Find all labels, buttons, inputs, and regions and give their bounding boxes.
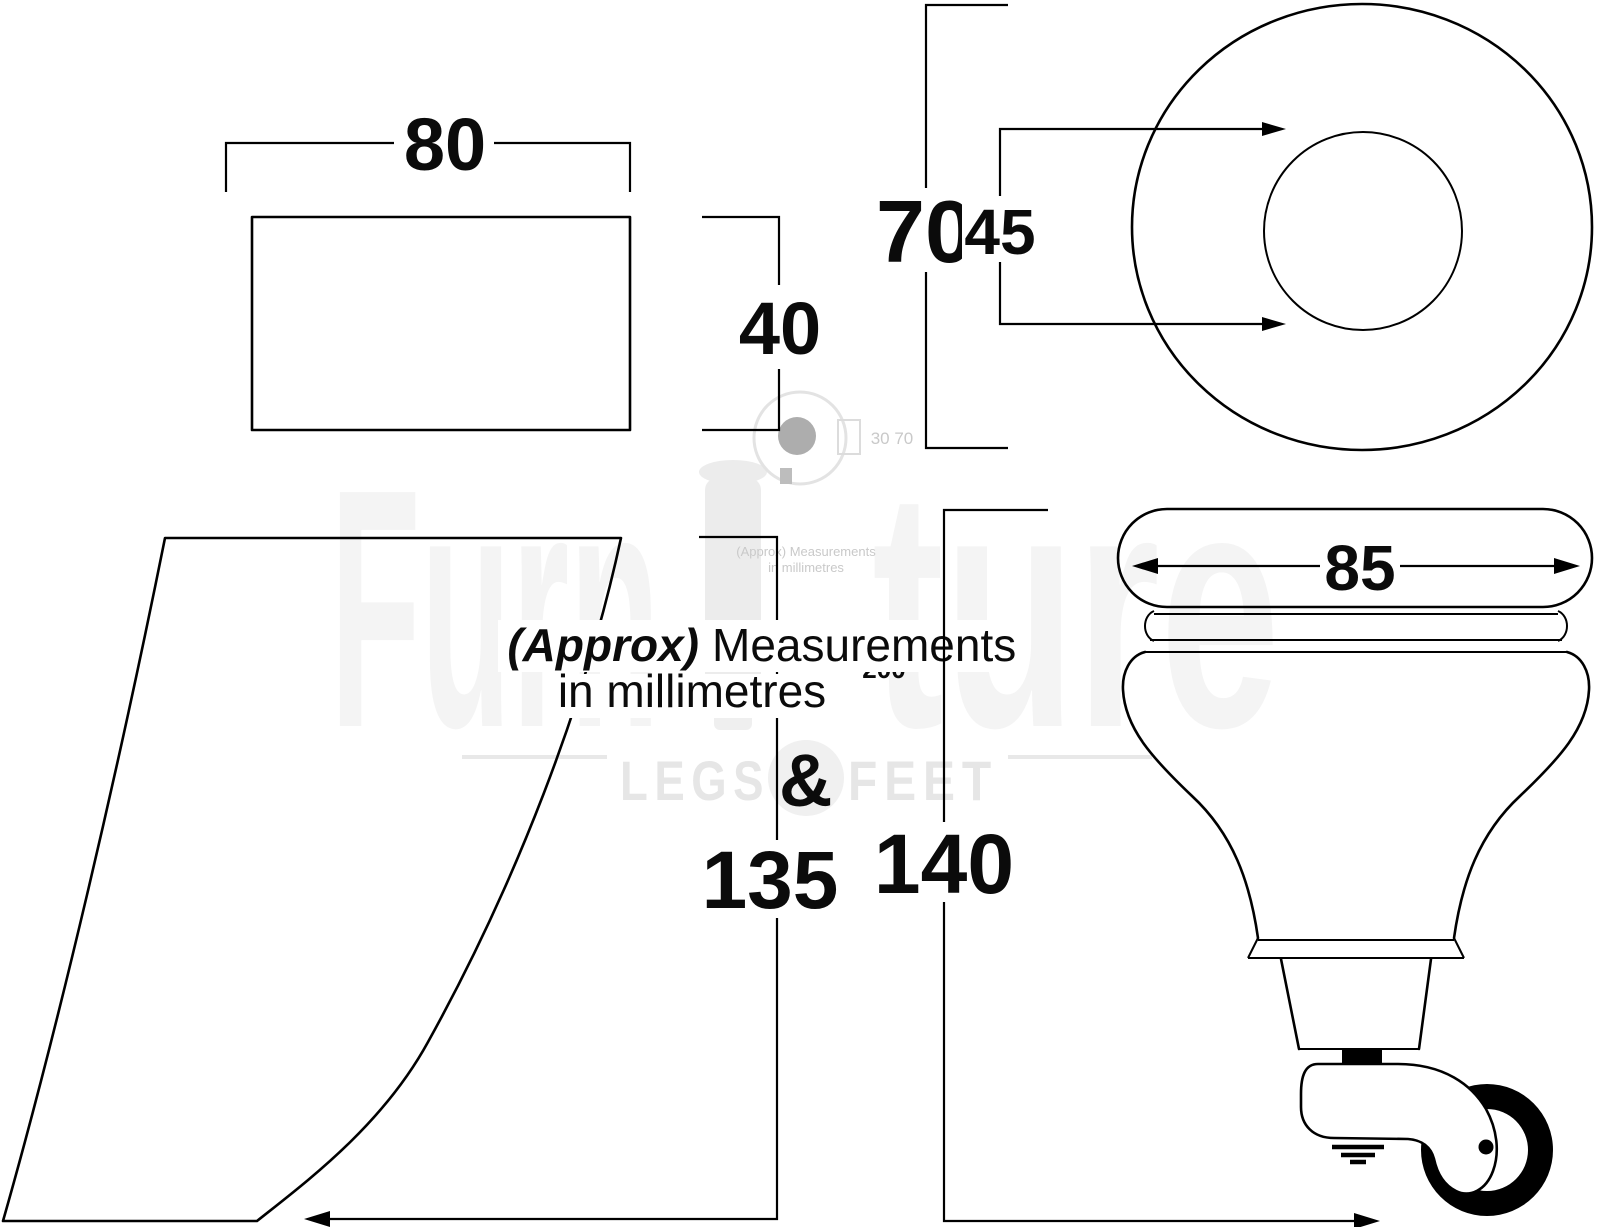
dim-label-135: 135 xyxy=(702,835,839,926)
diagram-canvas: Furn ture 30 70 (Approx) Measurements in… xyxy=(0,0,1600,1227)
castor-horn-bracket xyxy=(1301,1064,1497,1194)
dim-label-70: 70 xyxy=(876,182,974,281)
watermark-legs: LEGS xyxy=(620,749,770,812)
arrowhead-135 xyxy=(304,1211,330,1227)
dim-40: 40 xyxy=(702,217,827,430)
watermark-brand-left: Furn xyxy=(330,419,660,799)
dim-label-45: 45 xyxy=(964,196,1035,268)
watermark-brand-right: ture xyxy=(872,419,1280,799)
arrowhead-45-top xyxy=(1262,122,1286,136)
units-note-line2: in millimetres xyxy=(558,665,826,717)
top-view-round-leg: 70 45 xyxy=(876,4,1592,450)
castor-axle-dot xyxy=(1479,1140,1494,1155)
top-view-rect-leg: 80 40 xyxy=(226,103,827,430)
dim-80: 80 xyxy=(226,103,630,192)
watermark-small-note-2: in millimetres xyxy=(768,560,844,575)
arrowhead-140 xyxy=(1354,1213,1380,1227)
dim-label-85: 85 xyxy=(1324,532,1395,604)
watermark-ampersand: & xyxy=(779,739,832,822)
units-note-approx: (Approx) xyxy=(507,619,699,671)
watermark-feet: FEET xyxy=(848,749,998,812)
round-leg-inner-circle xyxy=(1264,132,1462,330)
dim-45: 45 xyxy=(962,122,1286,331)
watermark-size-30-70: 30 70 xyxy=(871,429,914,448)
units-note-measurements: Measurements xyxy=(712,619,1016,671)
furniture-leg-dimension-diagram: Furn ture 30 70 (Approx) Measurements in… xyxy=(0,0,1600,1227)
arrowhead-45-bottom xyxy=(1262,317,1286,331)
arrowhead-85-right xyxy=(1554,558,1580,574)
castor-leg-stem xyxy=(1248,938,1464,1049)
watermark-small-note-1: (Approx) Measurements xyxy=(736,544,876,559)
castor-assembly xyxy=(1301,1050,1553,1216)
dim-label-40: 40 xyxy=(739,287,821,370)
round-leg-outer-circle xyxy=(1132,4,1592,450)
castor-mounting-socket xyxy=(1342,1050,1382,1064)
dim-label-140: 140 xyxy=(874,817,1014,911)
dim-label-80: 80 xyxy=(404,103,486,186)
castor-ground-symbol xyxy=(1332,1147,1384,1162)
watermark-layer: Furn ture 30 70 (Approx) Measurements in… xyxy=(330,392,1280,822)
rect-leg-top-outline xyxy=(252,217,630,430)
